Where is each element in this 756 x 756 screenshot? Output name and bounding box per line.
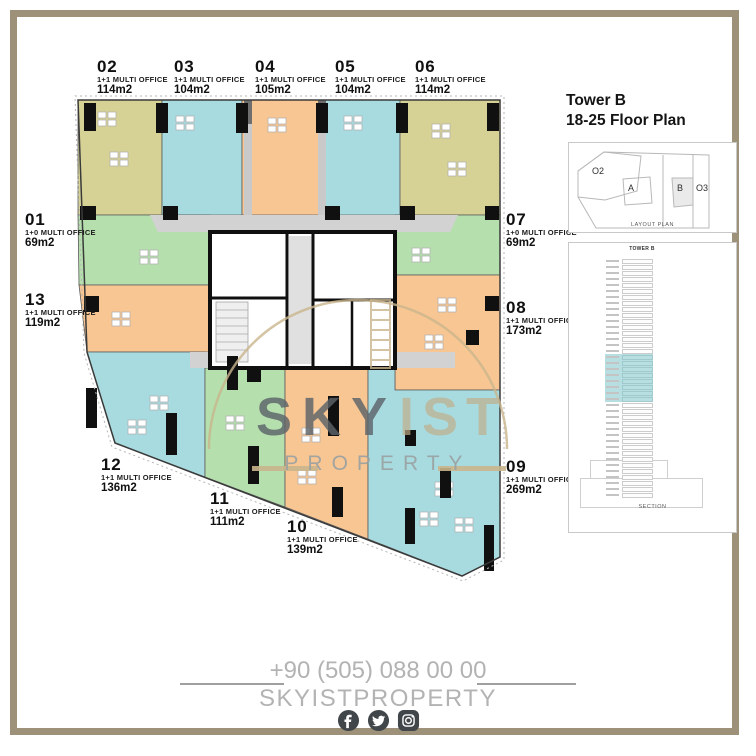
zone-label-a: A [628,183,634,193]
unit-area-11 [205,368,285,507]
unit-label-02: 02 1+1 MULTI OFFICE 114m2 [97,57,168,97]
unit-label-11: 11 1+1 MULTI OFFICE 111m2 [210,489,281,529]
unit-area-04 [242,100,322,215]
layout-plan-panel [568,142,737,233]
facebook-icon[interactable] [337,709,360,732]
unit-label-12: 12 1+1 MULTI OFFICE 136m2 [101,455,172,495]
zone-label-o2: O2 [592,166,604,176]
unit-label-09: 09 1+1 MULTI OFFICE 269m2 [506,457,577,497]
twitter-icon[interactable] [367,709,390,732]
unit-label-06: 06 1+1 MULTI OFFICE 114m2 [415,57,486,97]
unit-label-08: 08 1+1 MULTI OFFICE 173m2 [506,298,577,338]
social-icons [0,709,756,732]
section-tower-label: TOWER B [577,246,707,252]
unit-label-13: 13 1+1 MULTI OFFICE 119m2 [25,290,96,330]
section-tower [605,258,653,498]
unit-area-03 [162,100,242,215]
unit-label-03: 03 1+1 MULTI OFFICE 104m2 [174,57,245,97]
unit-area-06 [400,100,500,215]
section-caption: SECTION [568,504,737,510]
section-floor-row [605,492,653,498]
unit-label-04: 04 1+1 MULTI OFFICE 105m2 [255,57,326,97]
unit-label-05: 05 1+1 MULTI OFFICE 104m2 [335,57,406,97]
zone-label-o3: O3 [696,183,708,193]
zone-label-b: B [677,183,683,193]
unit-area-08 [395,275,500,390]
unit-label-01: 01 1+0 MULTI OFFICE 69m2 [25,210,96,250]
unit-label-10: 10 1+1 MULTI OFFICE 139m2 [287,517,358,557]
instagram-icon[interactable] [397,709,420,732]
unit-area-09 [368,368,500,576]
tower-name: Tower B [566,91,686,111]
floor-plan-range: 18-25 Floor Plan [566,111,686,131]
layout-plan-drawing [569,143,736,232]
phone-number: +90 (505) 088 00 00 [0,657,756,685]
sidebar-title: Tower B 18-25 Floor Plan [566,91,686,131]
unit-label-07: 07 1+0 MULTI OFFICE 69m2 [506,210,577,250]
layout-plan-caption: LAYOUT PLAN [568,222,737,228]
brochure-page: SKY IST PROPERTY 02 1+1 MULTI OFFICE 114… [0,0,756,756]
unit-area-13 [79,285,210,352]
